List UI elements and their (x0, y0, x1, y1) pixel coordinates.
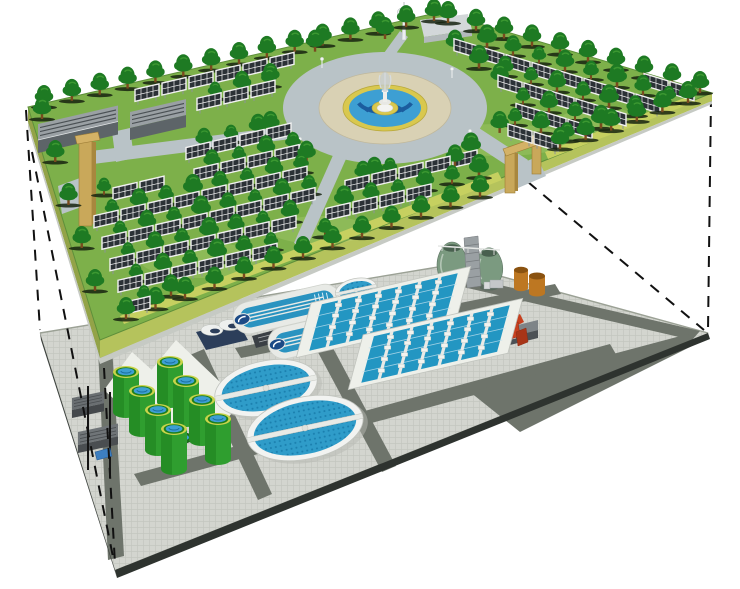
projection-dashed-line (708, 96, 711, 331)
illustration-canvas: Cutaway concept illustration: landscaped… (0, 0, 740, 589)
sludge-digester-cylinder (205, 413, 231, 465)
sludge-digester-cylinder (161, 423, 187, 475)
exploded-facility-illustration: Cutaway concept illustration: landscaped… (0, 0, 740, 589)
